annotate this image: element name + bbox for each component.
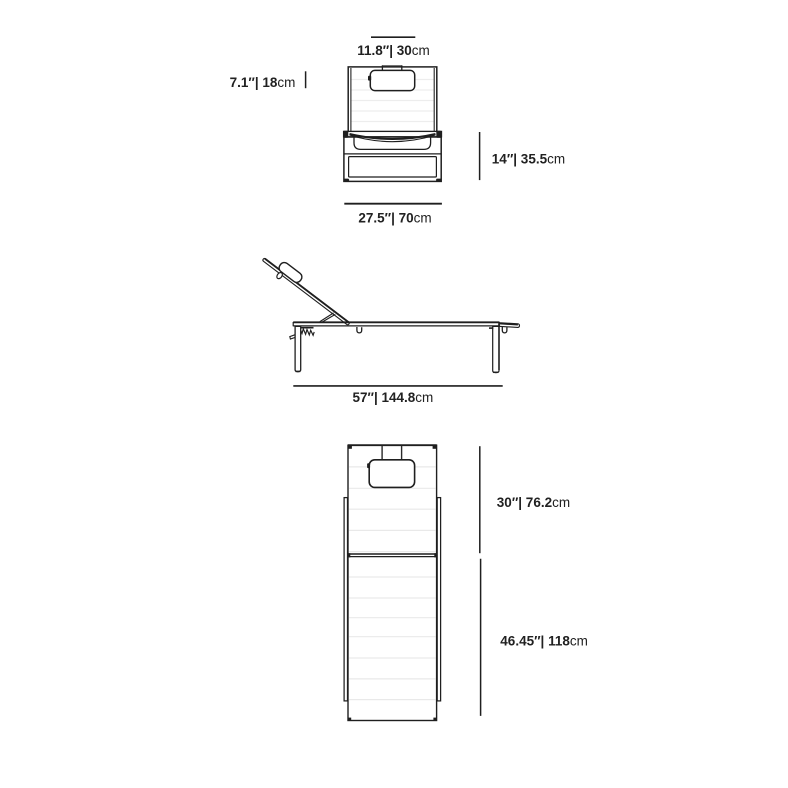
svg-text:14″| 35.5cm: 14″| 35.5cm (492, 151, 565, 166)
svg-text:11.8″| 30cm: 11.8″| 30cm (357, 43, 430, 58)
svg-text:57″| 144.8cm: 57″| 144.8cm (353, 390, 434, 405)
svg-text:27.5″| 70cm: 27.5″| 70cm (358, 210, 431, 225)
svg-text:46.45″| 118cm: 46.45″| 118cm (500, 633, 588, 648)
svg-text:30″| 76.2cm: 30″| 76.2cm (497, 495, 570, 510)
svg-text:7.1″| 18cm: 7.1″| 18cm (230, 75, 296, 90)
